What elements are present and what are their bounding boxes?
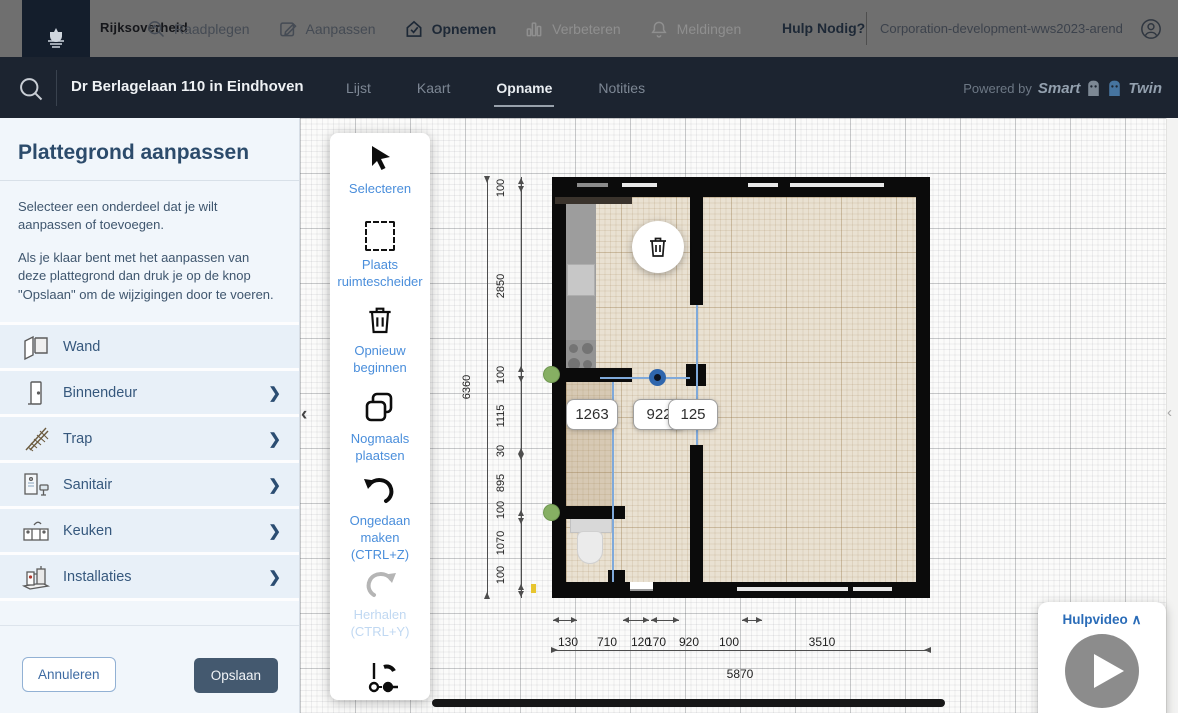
stove-burner bbox=[582, 343, 593, 354]
sidebar-item-trap[interactable]: Trap ❯ bbox=[0, 417, 299, 463]
dimension-arrows bbox=[521, 366, 522, 382]
sidebar-item-label: Binnendeur bbox=[63, 385, 137, 401]
sidebar-item-binnendeur[interactable]: Binnendeur ❯ bbox=[0, 371, 299, 417]
menu-item-verbeteren[interactable]: Verbeteren bbox=[524, 19, 621, 39]
dimension-label: 1070 bbox=[495, 531, 507, 555]
sidebar-intro-1: Selecteer een onderdeel dat je wilt aanp… bbox=[0, 198, 299, 235]
measure-chip: 1263 bbox=[566, 399, 618, 430]
window[interactable] bbox=[790, 183, 884, 187]
dimension-arrows bbox=[521, 448, 522, 460]
sidebar-title: Plattegrond aanpassen bbox=[0, 118, 299, 181]
dimension-total-bottom: 5870 bbox=[727, 667, 754, 681]
dimension-label: 2850 bbox=[495, 274, 507, 298]
play-video-button[interactable] bbox=[1065, 634, 1139, 708]
window[interactable] bbox=[853, 587, 892, 591]
dimension-label: 30 bbox=[495, 445, 507, 457]
dimension-label: 1115 bbox=[495, 405, 507, 428]
tool-nogmaals-plaatsen[interactable]: Nogmaals plaatsen bbox=[330, 389, 430, 465]
trash-icon bbox=[646, 235, 670, 259]
wall-left[interactable] bbox=[552, 177, 566, 598]
help-video-card: Hulpvideo ∧ bbox=[1038, 602, 1166, 713]
wall-right[interactable] bbox=[916, 177, 930, 598]
rijksoverheid-logo bbox=[22, 0, 90, 57]
sidebar-item-wand[interactable]: Wand bbox=[0, 325, 299, 371]
dimension-arrows bbox=[623, 620, 649, 621]
app-screen: Rijksoverheid Raadplegen Aanpassen Opnem… bbox=[0, 0, 1178, 713]
dashed-square-icon bbox=[330, 221, 430, 251]
tab-opname[interactable]: Opname bbox=[494, 76, 554, 100]
pencil-edit-icon bbox=[278, 19, 298, 39]
menu-item-aanpassen[interactable]: Aanpassen bbox=[278, 19, 376, 39]
window[interactable] bbox=[622, 183, 657, 187]
tool-plaats-ruimtescheider[interactable]: Plaats ruimtescheider bbox=[330, 221, 430, 291]
sidebar-item-keuken[interactable]: Keuken ❯ bbox=[0, 509, 299, 555]
tool-selecteren[interactable]: Selecteren bbox=[330, 143, 430, 198]
menu-item-raadplegen[interactable]: Raadplegen bbox=[146, 19, 250, 39]
chevron-up-icon: ∧ bbox=[1132, 612, 1142, 627]
dimension-arrows bbox=[521, 178, 522, 192]
chevron-right-icon: ❯ bbox=[268, 568, 281, 586]
trap-icon bbox=[20, 425, 52, 453]
undo-icon bbox=[330, 475, 430, 507]
tab-notities[interactable]: Notities bbox=[596, 76, 647, 100]
sub-header: Dr Berlagelaan 110 in Eindhoven Lijst Ka… bbox=[0, 57, 1178, 118]
smart-house-icon bbox=[1086, 79, 1101, 97]
house-magnifier-icon bbox=[146, 19, 166, 39]
tab-kaart[interactable]: Kaart bbox=[415, 76, 452, 100]
wall-shadow-strip bbox=[555, 197, 632, 204]
dimension-label: 100 bbox=[495, 566, 507, 584]
rijksoverheid-emblem-icon bbox=[43, 26, 69, 50]
tool-label: Nogmaals plaatsen bbox=[332, 431, 428, 465]
powered-by-brand: Powered by Smart Twin bbox=[963, 79, 1162, 97]
dimension-arrows bbox=[742, 620, 762, 621]
bell-icon bbox=[649, 19, 669, 39]
sidebar-intro-2: Als je klaar bent met het aanpassen van … bbox=[0, 249, 299, 304]
address-title: Dr Berlagelaan 110 in Eindhoven bbox=[71, 78, 304, 95]
wall-kitchen[interactable] bbox=[552, 368, 632, 382]
edit-sidebar: Plattegrond aanpassen Selecteer een onde… bbox=[0, 118, 300, 713]
menu-label: Raadplegen bbox=[174, 21, 250, 37]
cursor-icon bbox=[330, 143, 430, 175]
menu-label: Opnemen bbox=[432, 21, 497, 37]
wall-handle-green[interactable] bbox=[543, 366, 560, 383]
tool-label: Plaats ruimtescheider bbox=[332, 257, 428, 291]
dimension-label: 895 bbox=[495, 474, 507, 492]
sidebar-footer: Annuleren Opslaan bbox=[0, 625, 299, 713]
floor-area bbox=[566, 197, 916, 582]
divider-drag-handle[interactable] bbox=[649, 369, 666, 386]
window[interactable] bbox=[577, 183, 608, 187]
tool-connect-walls[interactable] bbox=[330, 661, 430, 700]
wall-handle-green[interactable] bbox=[543, 504, 560, 521]
search-icon[interactable] bbox=[17, 75, 45, 108]
chevron-right-icon: ❯ bbox=[268, 522, 281, 540]
menu-item-meldingen[interactable]: Meldingen bbox=[649, 19, 742, 39]
dimension-total-left: 6360 bbox=[461, 375, 473, 399]
tool-label: Selecteren bbox=[332, 181, 428, 198]
dimension-label: 100 bbox=[495, 366, 507, 384]
corner-marker-yellow bbox=[531, 584, 536, 593]
horizontal-scrollbar[interactable] bbox=[432, 699, 945, 707]
wall-bathroom[interactable] bbox=[552, 506, 625, 519]
dimension-label: 130 bbox=[558, 635, 578, 649]
top-menu-bar: Rijksoverheid Raadplegen Aanpassen Opnem… bbox=[0, 0, 1178, 57]
sidebar-item-label: Sanitair bbox=[63, 477, 112, 493]
powered-by-label: Powered by bbox=[963, 81, 1032, 96]
tool-label: Herhalen (CTRL+Y) bbox=[332, 607, 428, 641]
wall-partition-upper[interactable] bbox=[690, 197, 703, 305]
main-menu: Raadplegen Aanpassen Opnemen Verbeteren bbox=[146, 0, 741, 57]
dimension-label: 710 bbox=[597, 635, 617, 649]
installaties-icon bbox=[20, 563, 52, 591]
cancel-button[interactable]: Annuleren bbox=[22, 657, 116, 692]
twin-house-icon bbox=[1107, 79, 1122, 97]
subheader-divider bbox=[56, 70, 57, 106]
brand-twin: Twin bbox=[1128, 80, 1162, 97]
dimension-label: 920 bbox=[679, 635, 699, 649]
house-check-icon bbox=[404, 19, 424, 39]
dimension-line-total-bottom bbox=[552, 650, 930, 651]
duplicate-icon bbox=[330, 389, 430, 425]
help-video-label: Hulpvideo bbox=[1063, 612, 1128, 627]
chevron-right-icon: ❯ bbox=[268, 476, 281, 494]
tool-palette: Selecteren Plaats ruimtescheider Opnieuw… bbox=[330, 133, 430, 700]
chevron-right-icon: ❯ bbox=[268, 384, 281, 402]
wall-top[interactable] bbox=[552, 177, 930, 197]
menu-label: Verbeteren bbox=[552, 21, 621, 37]
account-avatar-icon[interactable] bbox=[1140, 18, 1162, 45]
wall-partition-lower[interactable] bbox=[690, 445, 703, 582]
sanitair-icon bbox=[20, 471, 52, 499]
view-tabs: Lijst Kaart Opname Notities bbox=[344, 57, 647, 118]
tab-lijst[interactable]: Lijst bbox=[344, 76, 373, 100]
delete-selection-button[interactable] bbox=[632, 221, 684, 273]
toilet-bowl bbox=[577, 531, 603, 564]
sidebar-item-label: Wand bbox=[63, 339, 100, 355]
dimension-label: 170 bbox=[646, 635, 666, 649]
redo-icon bbox=[330, 569, 430, 601]
dimension-arrows bbox=[651, 620, 679, 621]
tool-ongedaan-maken[interactable]: Ongedaan maken (CTRL+Z) bbox=[330, 475, 430, 564]
dimension-line-total-left bbox=[487, 177, 488, 598]
selected-divider-horizontal[interactable] bbox=[600, 377, 690, 379]
dimension-arrows bbox=[553, 620, 577, 621]
measure-chip: 125 bbox=[668, 399, 718, 430]
topbar-divider bbox=[866, 12, 867, 45]
wand-icon bbox=[20, 333, 52, 361]
sidebar-item-label: Keuken bbox=[63, 523, 112, 539]
help-video-toggle[interactable]: Hulpvideo ∧ bbox=[1038, 612, 1166, 628]
save-button[interactable]: Opslaan bbox=[194, 658, 278, 693]
menu-label: Meldingen bbox=[677, 21, 742, 37]
tool-label: Opnieuw beginnen bbox=[332, 343, 428, 377]
sidebar-item-sanitair[interactable]: Sanitair ❯ bbox=[0, 463, 299, 509]
account-name: Corporation-development-wws2023-arend bbox=[880, 21, 1123, 36]
kitchen-appliance[interactable] bbox=[567, 264, 595, 296]
bar-chart-icon bbox=[524, 19, 544, 39]
tool-herhalen[interactable]: Herhalen (CTRL+Y) bbox=[330, 569, 430, 641]
stove-burner bbox=[569, 344, 578, 353]
tool-opnieuw-beginnen[interactable]: Opnieuw beginnen bbox=[330, 303, 430, 377]
dimension-label: 100 bbox=[495, 179, 507, 197]
dimension-tick-line-left bbox=[521, 177, 522, 598]
brand-smart: Smart bbox=[1038, 80, 1081, 97]
trash-icon bbox=[330, 303, 430, 337]
sidebar-item-label: Installaties bbox=[63, 569, 132, 585]
window[interactable] bbox=[748, 183, 778, 187]
dimension-label: 100 bbox=[719, 635, 739, 649]
keuken-icon bbox=[20, 517, 52, 545]
window[interactable] bbox=[737, 587, 848, 591]
dimension-arrows bbox=[521, 584, 522, 597]
component-list: Wand Binnendeur ❯ Trap ❯ bbox=[0, 322, 299, 601]
menu-item-opnemen[interactable]: Opnemen bbox=[404, 19, 497, 39]
dimension-label: 3510 bbox=[809, 635, 836, 649]
menu-label: Aanpassen bbox=[306, 21, 376, 37]
tool-label: Ongedaan maken (CTRL+Z) bbox=[332, 513, 428, 564]
connector-icon bbox=[330, 661, 430, 700]
sidebar-item-label: Trap bbox=[63, 431, 92, 447]
binnendeur-icon bbox=[20, 379, 52, 407]
door-opening[interactable] bbox=[630, 582, 653, 591]
floorplan-canvas[interactable]: ‹ ‹ bbox=[300, 118, 1178, 713]
help-needed-link[interactable]: Hulp Nodig? bbox=[782, 20, 865, 36]
dimension-arrows bbox=[521, 510, 522, 524]
sidebar-item-installaties[interactable]: Installaties ❯ bbox=[0, 555, 299, 601]
dimension-label: 100 bbox=[495, 501, 507, 519]
chevron-right-icon: ❯ bbox=[268, 430, 281, 448]
wall-bathroom-stub[interactable] bbox=[608, 570, 625, 582]
